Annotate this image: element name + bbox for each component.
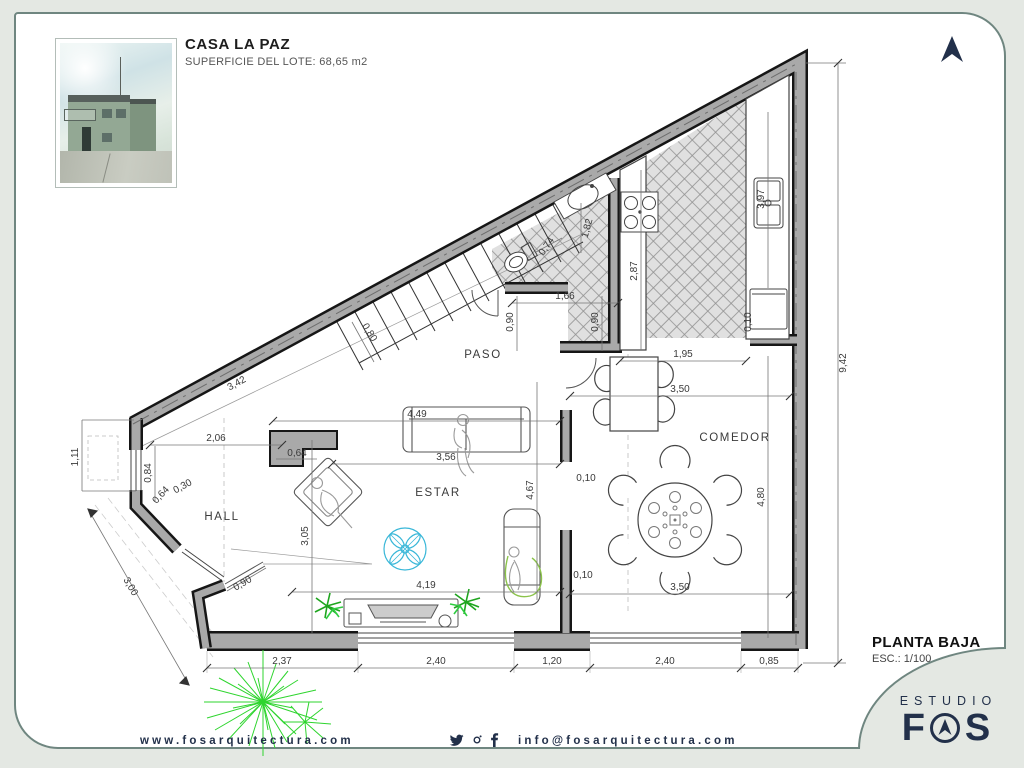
dim-166: 1,66: [555, 291, 575, 302]
logo-letter-s: S: [965, 709, 990, 747]
dim-090b: 0,90: [590, 312, 601, 332]
website-link[interactable]: www.fosarquitectura.com: [140, 735, 354, 747]
tv-console: [344, 599, 458, 627]
dim-010a: 0,10: [576, 473, 596, 484]
dim-350a: 3,50: [670, 384, 690, 395]
twitter-icon[interactable]: [449, 734, 464, 747]
ceiling-fan: [384, 528, 426, 570]
facebook-icon[interactable]: [490, 733, 499, 747]
north-arrow-icon: [941, 36, 963, 62]
dim-305: 3,05: [300, 526, 311, 546]
logo-studio-text: ESTUDIO: [895, 694, 1002, 708]
dim-010b: 0,10: [573, 570, 593, 581]
room-comedor: COMEDOR: [699, 432, 770, 444]
drawing-sheet: CASA LA PAZ SUPERFICIE DEL LOTE: 68,65 m…: [0, 0, 1024, 768]
dim-084: 0,84: [143, 463, 154, 483]
dim-480: 4,80: [756, 487, 767, 507]
dim-064a: 0,64: [151, 484, 173, 506]
plan-title-block: PLANTA BAJA ESC.: 1/100: [872, 634, 981, 665]
dining-table: [603, 446, 747, 595]
dim-240a: 2,40: [426, 656, 446, 667]
lounge-chair: [504, 509, 540, 605]
dim-419: 4,19: [416, 580, 436, 591]
dim-120: 1,20: [542, 656, 562, 667]
dim-942: 9,42: [838, 353, 849, 373]
stove: [621, 192, 658, 232]
room-hall: HALL: [204, 511, 239, 523]
dim-206: 2,06: [206, 433, 226, 444]
dim-085: 0,85: [759, 656, 779, 667]
dim-467: 4,67: [525, 480, 536, 500]
fridge: [750, 289, 787, 329]
dim-287: 2,87: [629, 261, 640, 281]
dim-240b: 2,40: [655, 656, 675, 667]
dim-010c: 0,10: [743, 312, 754, 332]
dim-030: 0,30: [172, 477, 195, 496]
dim-111: 1,11: [70, 447, 81, 466]
logo-compass-icon: [928, 711, 962, 745]
instagram-icon[interactable]: [470, 733, 484, 747]
plan-scale: ESC.: 1/100: [872, 653, 981, 665]
dim-356: 3,56: [436, 452, 456, 463]
bar-table: [593, 357, 674, 431]
studio-logo: ESTUDIO F S: [890, 694, 1002, 747]
dim-237: 2,37: [272, 656, 292, 667]
email-link[interactable]: info@fosarquitectura.com: [518, 735, 738, 747]
dim-350b: 3,50: [670, 582, 690, 593]
logo-letter-f: F: [902, 709, 925, 747]
dim-090a: 0,90: [505, 312, 516, 332]
dim-195: 1,95: [673, 349, 693, 360]
dim-064b: 0,64: [287, 448, 307, 459]
room-estar: ESTAR: [415, 487, 461, 499]
plan-name: PLANTA BAJA: [872, 634, 981, 651]
floor-plan: 2,37 2,40 1,20 2,40 0,85 9,42 2,06 4,49 …: [0, 0, 1024, 768]
room-paso: PASO: [464, 349, 502, 361]
dim-397: 3,97: [756, 189, 767, 209]
dim-449: 4,49: [407, 409, 427, 420]
social-icons: [449, 733, 499, 747]
